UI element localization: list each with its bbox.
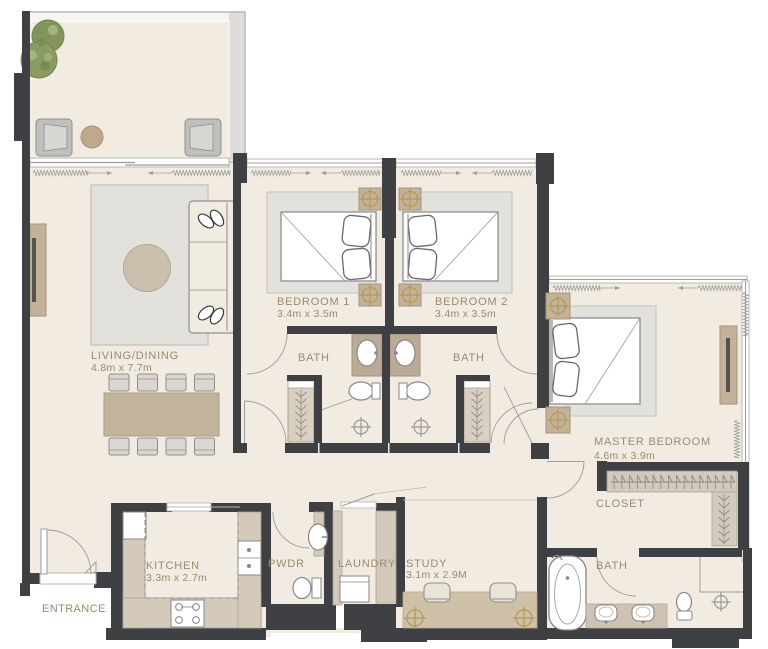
svg-text:BATH: BATH	[453, 352, 485, 364]
svg-text:LAUNDRY: LAUNDRY	[338, 558, 396, 570]
svg-text:3.1m x 2.9M: 3.1m x 2.9M	[406, 569, 467, 581]
svg-text:BEDROOM 1: BEDROOM 1	[277, 296, 350, 308]
svg-text:KITCHEN: KITCHEN	[146, 560, 200, 572]
svg-text:BATH: BATH	[298, 352, 330, 364]
svg-text:3.4m x 3.5m: 3.4m x 3.5m	[277, 308, 338, 320]
svg-text:PWDR: PWDR	[268, 558, 305, 570]
svg-text:3.4m x 3.5m: 3.4m x 3.5m	[435, 308, 496, 320]
svg-text:ENTRANCE: ENTRANCE	[42, 603, 106, 615]
svg-text:CLOSET: CLOSET	[596, 498, 645, 510]
svg-text:BEDROOM 2: BEDROOM 2	[435, 296, 508, 308]
svg-text:MASTER BEDROOM: MASTER BEDROOM	[594, 436, 711, 448]
svg-text:4.8m x 7.7m: 4.8m x 7.7m	[91, 362, 152, 374]
svg-text:4.6m x 3.9m: 4.6m x 3.9m	[594, 450, 655, 462]
svg-text:BATH: BATH	[596, 560, 628, 572]
svg-text:LIVING/DINING: LIVING/DINING	[91, 350, 179, 362]
svg-text:3.3m x 2.7m: 3.3m x 2.7m	[146, 572, 207, 584]
